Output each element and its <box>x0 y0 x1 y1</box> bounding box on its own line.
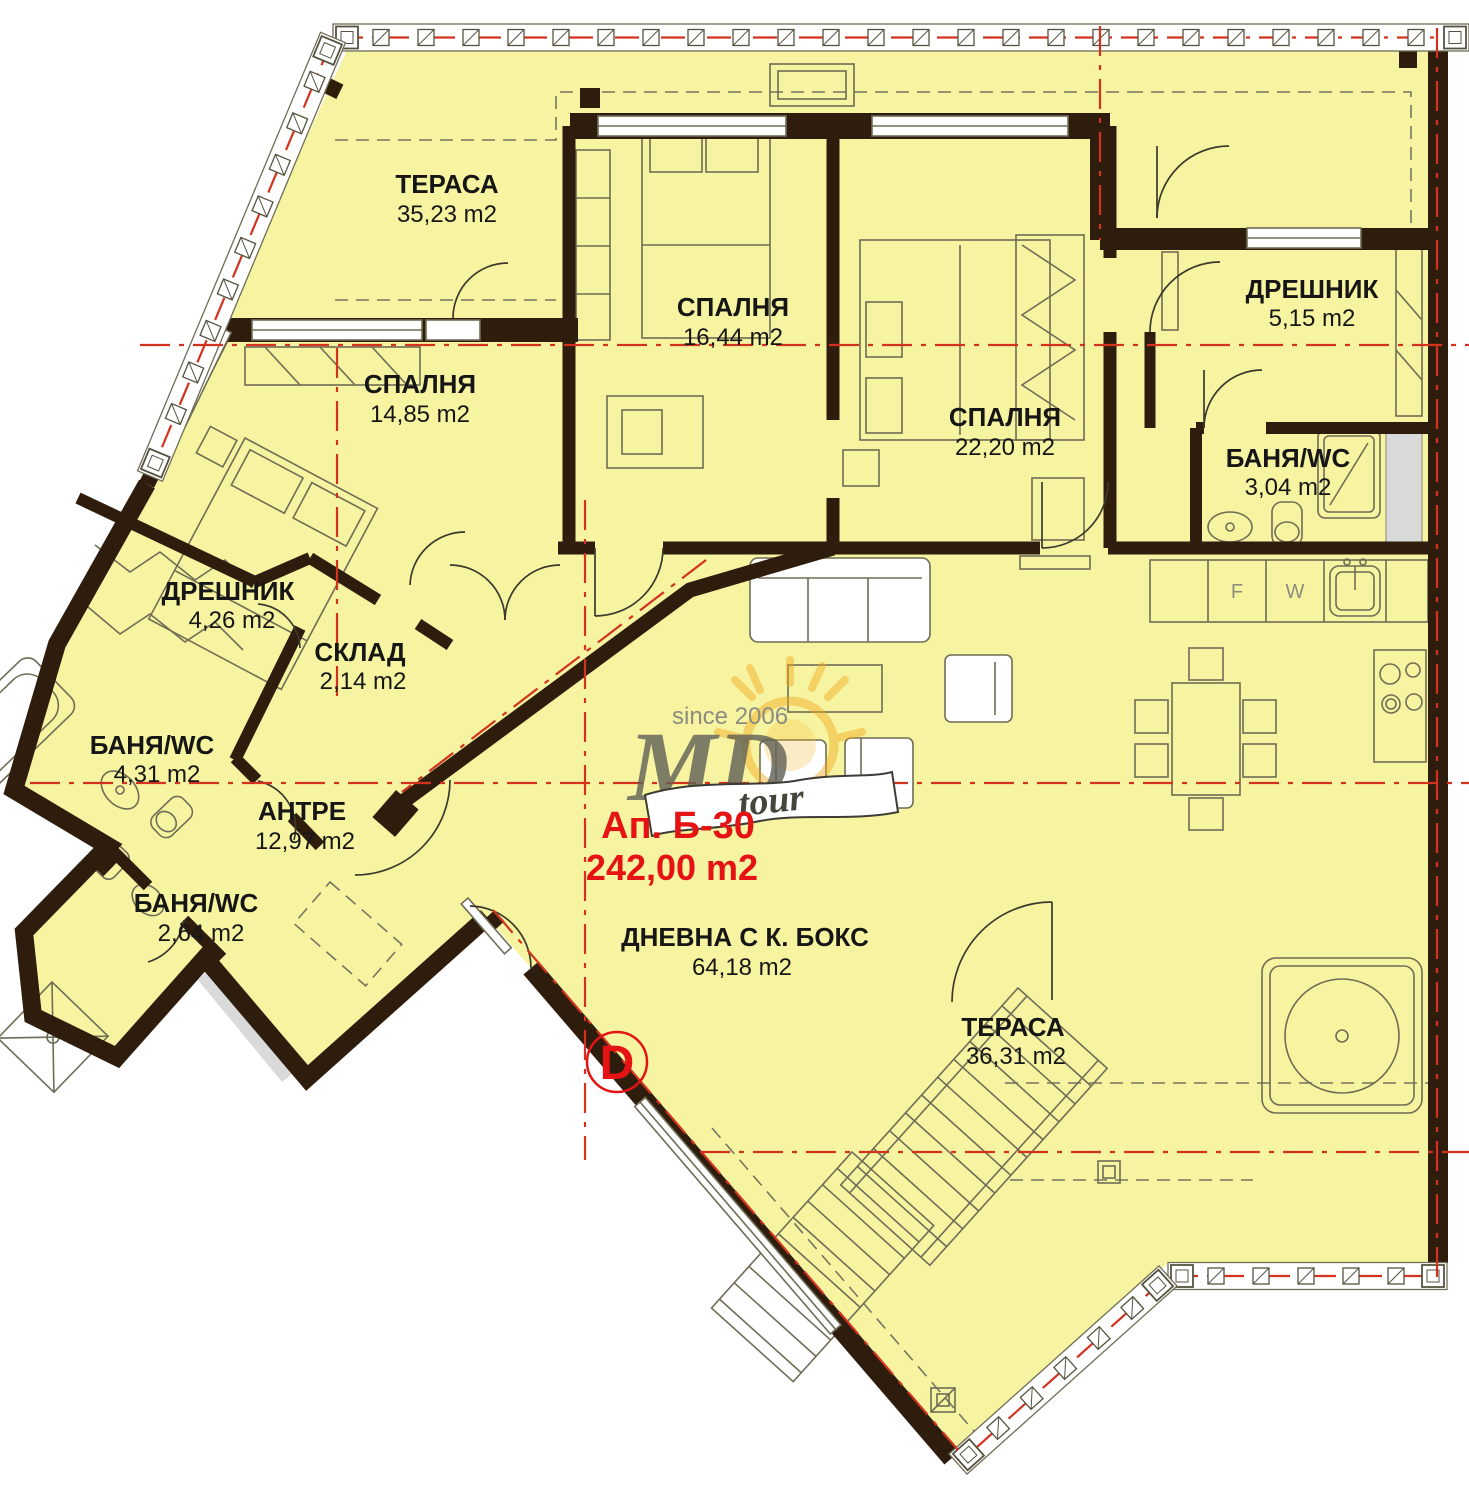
label-terrace-top: ТЕРАСА35,23 m2 <box>395 169 499 228</box>
label-terrace-bottom: ТЕРАСА36,31 m2 <box>961 1012 1066 1070</box>
label-bedroom-16: СПАЛНЯ16,44 m2 <box>677 292 789 351</box>
svg-text:СПАЛНЯ: СПАЛНЯ <box>949 402 1061 432</box>
floor-plan-svg: since 2006 MD tour ТЕРАСА35,23 m2 СПАЛНЯ… <box>0 0 1469 1493</box>
svg-text:2,64 m2: 2,64 m2 <box>158 920 245 947</box>
window-bedroom-22 <box>872 116 1068 136</box>
svg-text:СКЛАД: СКЛАД <box>314 637 406 667</box>
svg-text:35,23 m2: 35,23 m2 <box>397 201 497 228</box>
armchair-3 <box>945 655 1012 722</box>
railing-strip <box>1168 1263 1447 1290</box>
svg-text:СПАЛНЯ: СПАЛНЯ <box>677 292 789 322</box>
label-hall: АНТРЕ12,97 m2 <box>255 796 355 855</box>
window-bedroom-14 <box>252 320 422 340</box>
window-bedroom-16 <box>598 116 786 136</box>
svg-text:2,14 m2: 2,14 m2 <box>320 668 407 695</box>
shaft-gray <box>1386 430 1422 546</box>
svg-text:14,85 m2: 14,85 m2 <box>370 401 470 428</box>
apartment-total-area: 242,00 m2 <box>586 847 758 888</box>
label-bedroom-22: СПАЛНЯ22,20 m2 <box>949 402 1061 461</box>
svg-text:БАНЯ/WC: БАНЯ/WC <box>90 730 215 760</box>
svg-text:СПАЛНЯ: СПАЛНЯ <box>364 369 476 399</box>
svg-text:36,31 m2: 36,31 m2 <box>966 1043 1066 1070</box>
svg-text:5,15 m2: 5,15 m2 <box>1269 305 1356 332</box>
svg-text:БАНЯ/WC: БАНЯ/WC <box>1226 443 1351 473</box>
svg-text:22,20 m2: 22,20 m2 <box>955 434 1055 461</box>
section-marker-letter: D <box>600 1037 635 1090</box>
railing-strip <box>333 24 1469 51</box>
svg-text:12,97 m2: 12,97 m2 <box>255 828 355 855</box>
window-closet-515 <box>1247 228 1361 248</box>
svg-text:ДРЕШНИК: ДРЕШНИК <box>162 576 295 606</box>
svg-text:4,31 m2: 4,31 m2 <box>114 761 201 788</box>
svg-text:ТЕРАСА: ТЕРАСА <box>395 169 499 199</box>
label-storage: СКЛАД2,14 m2 <box>314 637 406 695</box>
svg-text:3,04 m2: 3,04 m2 <box>1245 474 1332 501</box>
svg-text:64,18 m2: 64,18 m2 <box>692 954 792 981</box>
svg-text:4,26 m2: 4,26 m2 <box>189 607 276 634</box>
apartment-title: Ап. Б-30 242,00 m2 <box>586 805 758 888</box>
svg-text:16,44 m2: 16,44 m2 <box>683 324 783 351</box>
svg-text:БАНЯ/WC: БАНЯ/WC <box>134 888 259 918</box>
fridge-letter: F <box>1231 581 1243 603</box>
apartment-number: Ап. Б-30 <box>601 805 755 847</box>
washer-letter: W <box>1286 581 1305 603</box>
floor-plan-page: since 2006 MD tour ТЕРАСА35,23 m2 СПАЛНЯ… <box>0 0 1469 1493</box>
svg-text:АНТРЕ: АНТРЕ <box>258 796 346 826</box>
label-bedroom-14: СПАЛНЯ14,85 m2 <box>364 369 476 428</box>
svg-text:ДРЕШНИК: ДРЕШНИК <box>1246 274 1379 304</box>
svg-text:ТЕРАСА: ТЕРАСА <box>961 1012 1065 1042</box>
svg-text:ДНЕВНА С К. БОКС: ДНЕВНА С К. БОКС <box>621 922 869 952</box>
